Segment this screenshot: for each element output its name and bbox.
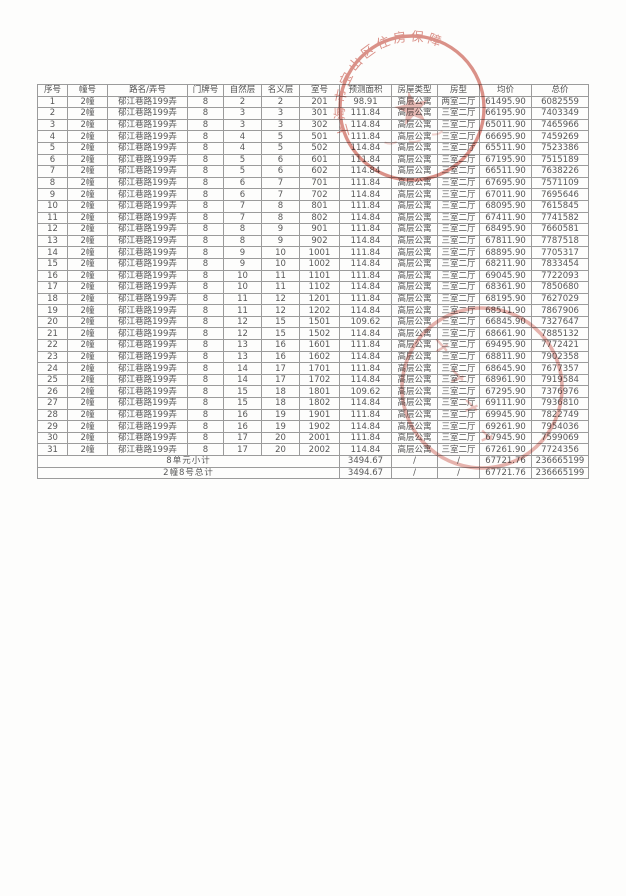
table-cell: 三室二厅	[438, 200, 480, 212]
table-cell: 16	[38, 270, 68, 282]
table-cell: 8	[188, 224, 224, 236]
col-header-natural-floor: 自然层	[224, 85, 262, 97]
table-cell: 21	[38, 328, 68, 340]
table-cell: 13	[38, 235, 68, 247]
table-cell: 1601	[300, 340, 340, 352]
table-cell: 8	[188, 340, 224, 352]
table-cell: 23	[38, 351, 68, 363]
table-cell: 高层公寓	[392, 200, 438, 212]
table-cell: 12	[262, 305, 300, 317]
table-cell: 111.84	[340, 363, 392, 375]
table-cell: 8	[188, 328, 224, 340]
table-cell: 11	[262, 270, 300, 282]
table-row: 112幢郁江巷路199弄878802114.84高层公寓三室二厅67411.90…	[38, 212, 589, 224]
table-cell: 6082559	[532, 96, 589, 108]
table-row: 12幢郁江巷路199弄82220198.91高层公寓两室二厅61495.9060…	[38, 96, 589, 108]
table-cell: 69261.90	[480, 421, 532, 433]
table-cell: 3	[38, 119, 68, 131]
table-cell: 10	[262, 247, 300, 259]
table-cell: 3	[224, 108, 262, 120]
table-cell: 111.84	[340, 409, 392, 421]
table-row: 202幢郁江巷路199弄812151501109.62高层公寓三室二厅66845…	[38, 316, 589, 328]
table-row: 162幢郁江巷路199弄810111101111.84高层公寓三室二厅69045…	[38, 270, 589, 282]
table-cell: 9	[38, 189, 68, 201]
table-cell: 10	[38, 200, 68, 212]
table-cell: 11	[38, 212, 68, 224]
table-cell: 2幢	[68, 282, 108, 294]
table-cell: 三室二厅	[438, 189, 480, 201]
table-cell: 68511.90	[480, 305, 532, 317]
table-cell: 8	[188, 119, 224, 131]
table-cell: 9	[262, 235, 300, 247]
table-cell: 三室二厅	[438, 351, 480, 363]
table-cell: 高层公寓	[392, 409, 438, 421]
table-row: 152幢郁江巷路199弄89101002114.84高层公寓三室二厅68211.…	[38, 258, 589, 270]
table-cell: 111.84	[340, 200, 392, 212]
table-cell: 7936810	[532, 398, 589, 410]
table-row: 212幢郁江巷路199弄812151502114.84高层公寓三室二厅68661…	[38, 328, 589, 340]
unit-subtotal-row: 8单元小计3494.67//67721.76236665199	[38, 456, 589, 468]
table-cell: 19	[38, 305, 68, 317]
table-cell: 三室二厅	[438, 409, 480, 421]
table-cell: 20	[262, 432, 300, 444]
table-cell: 12	[224, 316, 262, 328]
table-cell: 三室二厅	[438, 432, 480, 444]
summary-value-cell: 3494.67	[340, 456, 392, 468]
table-cell: 11	[262, 282, 300, 294]
table-cell: 30	[38, 432, 68, 444]
table-cell: 17	[262, 374, 300, 386]
table-cell: 801	[300, 200, 340, 212]
table-cell: 98.91	[340, 96, 392, 108]
table-cell: 5	[262, 131, 300, 143]
table-cell: 1901	[300, 409, 340, 421]
col-header-layout: 房型	[438, 85, 480, 97]
table-cell: 高层公寓	[392, 374, 438, 386]
summary-value-cell: /	[438, 456, 480, 468]
table-cell: 郁江巷路199弄	[108, 108, 188, 120]
table-cell: 114.84	[340, 421, 392, 433]
table-cell: 郁江巷路199弄	[108, 409, 188, 421]
table-cell: 7571109	[532, 177, 589, 189]
table-cell: 高层公寓	[392, 258, 438, 270]
table-row: 282幢郁江巷路199弄816191901111.84高层公寓三室二厅69945…	[38, 409, 589, 421]
table-cell: 2幢	[68, 351, 108, 363]
table-cell: 高层公寓	[392, 293, 438, 305]
table-cell: 19	[262, 409, 300, 421]
table-cell: 65011.90	[480, 119, 532, 131]
table-cell: 22	[38, 340, 68, 352]
table-cell: 69495.90	[480, 340, 532, 352]
table-cell: 2幢	[68, 374, 108, 386]
table-cell: 4	[224, 131, 262, 143]
scanned-document-page: 序号 幢号 路名/弄号 门牌号 自然层 名义层 室号 预测面积 房屋类型 房型 …	[0, 0, 626, 896]
table-cell: 郁江巷路199弄	[108, 247, 188, 259]
table-cell: 8	[262, 200, 300, 212]
table-cell: 三室二厅	[438, 108, 480, 120]
table-cell: 109.62	[340, 386, 392, 398]
header-row: 序号 幢号 路名/弄号 门牌号 自然层 名义层 室号 预测面积 房屋类型 房型 …	[38, 85, 589, 97]
table-cell: 高层公寓	[392, 421, 438, 433]
table-cell: 高层公寓	[392, 351, 438, 363]
table-cell: 郁江巷路199弄	[108, 119, 188, 131]
table-cell: 8	[38, 177, 68, 189]
table-cell: 10	[224, 282, 262, 294]
table-cell: 1501	[300, 316, 340, 328]
table-cell: 郁江巷路199弄	[108, 131, 188, 143]
table-cell: 7523386	[532, 142, 589, 154]
table-cell: 7	[38, 166, 68, 178]
table-cell: 13	[224, 340, 262, 352]
table-cell: 114.84	[340, 328, 392, 340]
table-cell: 三室二厅	[438, 421, 480, 433]
table-cell: 114.84	[340, 374, 392, 386]
table-cell: 三室二厅	[438, 270, 480, 282]
table-cell: 10	[224, 270, 262, 282]
table-cell: 三室二厅	[438, 328, 480, 340]
table-cell: 501	[300, 131, 340, 143]
table-cell: 111.84	[340, 131, 392, 143]
table-cell: 郁江巷路199弄	[108, 270, 188, 282]
table-cell: 17	[262, 363, 300, 375]
table-cell: 9	[262, 224, 300, 236]
table-cell: 8	[188, 177, 224, 189]
table-row: 312幢郁江巷路199弄817202002114.84高层公寓三室二厅67261…	[38, 444, 589, 456]
table-cell: 7919584	[532, 374, 589, 386]
table-cell: 66695.90	[480, 131, 532, 143]
table-cell: 111.84	[340, 293, 392, 305]
table-cell: 7677357	[532, 363, 589, 375]
table-cell: 114.84	[340, 235, 392, 247]
table-cell: 67195.90	[480, 154, 532, 166]
table-cell: 7327647	[532, 316, 589, 328]
table-row: 102幢郁江巷路199弄878801111.84高层公寓三室二厅68095.90…	[38, 200, 589, 212]
table-row: 222幢郁江巷路199弄813161601111.84高层公寓三室二厅69495…	[38, 340, 589, 352]
table-row: 42幢郁江巷路199弄845501111.84高层公寓三室二厅66695.907…	[38, 131, 589, 143]
table-cell: 2幢	[68, 258, 108, 270]
table-cell: 66845.90	[480, 316, 532, 328]
table-cell: 114.84	[340, 444, 392, 456]
table-cell: 2	[224, 96, 262, 108]
table-cell: 郁江巷路199弄	[108, 293, 188, 305]
table-cell: 2幢	[68, 189, 108, 201]
table-cell: 高层公寓	[392, 282, 438, 294]
col-header-room-no: 室号	[300, 85, 340, 97]
table-cell: 2幢	[68, 131, 108, 143]
table-cell: 郁江巷路199弄	[108, 96, 188, 108]
table-cell: 1502	[300, 328, 340, 340]
table-cell: 114.84	[340, 212, 392, 224]
summary-label-cell: 2幢8号总计	[38, 467, 340, 479]
table-cell: 28	[38, 409, 68, 421]
table-cell: 68361.90	[480, 282, 532, 294]
table-cell: 25	[38, 374, 68, 386]
table-cell: 31	[38, 444, 68, 456]
table-cell: 29	[38, 421, 68, 433]
table-cell: 2幢	[68, 108, 108, 120]
table-row: 192幢郁江巷路199弄811121202114.84高层公寓三室二厅68511…	[38, 305, 589, 317]
table-cell: 郁江巷路199弄	[108, 282, 188, 294]
table-cell: 7724356	[532, 444, 589, 456]
table-cell: 1001	[300, 247, 340, 259]
table-cell: 高层公寓	[392, 316, 438, 328]
table-cell: 2幢	[68, 270, 108, 282]
table-cell: 7660581	[532, 224, 589, 236]
table-cell: 2幢	[68, 409, 108, 421]
table-cell: 8	[188, 293, 224, 305]
table-cell: 高层公寓	[392, 386, 438, 398]
table-cell: 8	[188, 247, 224, 259]
table-cell: 郁江巷路199弄	[108, 351, 188, 363]
table-cell: 67261.90	[480, 444, 532, 456]
table-cell: 14	[224, 363, 262, 375]
table-cell: 1101	[300, 270, 340, 282]
table-cell: 15	[224, 398, 262, 410]
table-cell: 114.84	[340, 166, 392, 178]
table-cell: 111.84	[340, 432, 392, 444]
table-cell: 114.84	[340, 351, 392, 363]
col-header-forecast-area: 预测面积	[340, 85, 392, 97]
table-cell: 2幢	[68, 340, 108, 352]
table-cell: 8	[262, 212, 300, 224]
table-cell: 7376976	[532, 386, 589, 398]
table-cell: 高层公寓	[392, 247, 438, 259]
table-cell: 1201	[300, 293, 340, 305]
table-cell: 68095.90	[480, 200, 532, 212]
table-cell: 67945.90	[480, 432, 532, 444]
table-cell: 902	[300, 235, 340, 247]
table-cell: 郁江巷路199弄	[108, 154, 188, 166]
table-cell: 2幢	[68, 421, 108, 433]
table-cell: 502	[300, 142, 340, 154]
table-cell: 14	[38, 247, 68, 259]
table-row: 72幢郁江巷路199弄856602114.84高层公寓三室二厅66511.907…	[38, 166, 589, 178]
table-cell: 15	[224, 386, 262, 398]
table-row: 142幢郁江巷路199弄89101001111.84高层公寓三室二厅68895.…	[38, 247, 589, 259]
table-cell: 7403349	[532, 108, 589, 120]
table-cell: 郁江巷路199弄	[108, 444, 188, 456]
table-cell: 201	[300, 96, 340, 108]
table-cell: 702	[300, 189, 340, 201]
table-row: 62幢郁江巷路199弄856601111.84高层公寓三室二厅67195.907…	[38, 154, 589, 166]
table-cell: 5	[224, 166, 262, 178]
table-cell: 郁江巷路199弄	[108, 142, 188, 154]
table-cell: 4	[38, 131, 68, 143]
table-cell: 三室二厅	[438, 340, 480, 352]
table-row: 22幢郁江巷路199弄833301111.84高层公寓三室二厅66195.907…	[38, 108, 589, 120]
table-cell: 2幢	[68, 142, 108, 154]
col-header-unit-price: 均价	[480, 85, 532, 97]
table-cell: 三室二厅	[438, 386, 480, 398]
table-row: 52幢郁江巷路199弄845502114.84高层公寓三室二厅65511.907…	[38, 142, 589, 154]
table-cell: 2幢	[68, 293, 108, 305]
table-cell: 1802	[300, 398, 340, 410]
table-row: 302幢郁江巷路199弄817202001111.84高层公寓三室二厅67945…	[38, 432, 589, 444]
table-cell: 8	[188, 108, 224, 120]
col-header-door-no: 门牌号	[188, 85, 224, 97]
table-cell: 1102	[300, 282, 340, 294]
table-cell: 7867906	[532, 305, 589, 317]
table-cell: 111.84	[340, 177, 392, 189]
table-cell: 2幢	[68, 316, 108, 328]
table-cell: 2幢	[68, 96, 108, 108]
table-cell: 8	[224, 235, 262, 247]
table-cell: 114.84	[340, 119, 392, 131]
table-cell: 109.62	[340, 316, 392, 328]
table-row: 122幢郁江巷路199弄889901111.84高层公寓三室二厅68495.90…	[38, 224, 589, 236]
table-cell: 郁江巷路199弄	[108, 316, 188, 328]
table-cell: 26	[38, 386, 68, 398]
table-cell: 8	[188, 258, 224, 270]
table-header: 序号 幢号 路名/弄号 门牌号 自然层 名义层 室号 预测面积 房屋类型 房型 …	[38, 85, 589, 97]
table-cell: 8	[188, 189, 224, 201]
table-cell: 15	[38, 258, 68, 270]
table-cell: 8	[188, 351, 224, 363]
table-cell: 2幢	[68, 444, 108, 456]
table-cell: 郁江巷路199弄	[108, 305, 188, 317]
table-cell: 郁江巷路199弄	[108, 224, 188, 236]
table-cell: 8	[188, 363, 224, 375]
table-cell: 6	[224, 177, 262, 189]
table-cell: 三室二厅	[438, 154, 480, 166]
table-cell: 8	[188, 142, 224, 154]
table-cell: 高层公寓	[392, 189, 438, 201]
table-cell: 高层公寓	[392, 444, 438, 456]
table-cell: 6	[224, 189, 262, 201]
table-cell: 67811.90	[480, 235, 532, 247]
table-cell: 114.84	[340, 282, 392, 294]
table-cell: 5	[224, 154, 262, 166]
table-cell: 高层公寓	[392, 432, 438, 444]
table-cell: 三室二厅	[438, 177, 480, 189]
table-cell: 郁江巷路199弄	[108, 386, 188, 398]
table-cell: 68211.90	[480, 258, 532, 270]
table-cell: 16	[262, 340, 300, 352]
table-cell: 7850680	[532, 282, 589, 294]
table-cell: 901	[300, 224, 340, 236]
table-cell: 68195.90	[480, 293, 532, 305]
table-cell: 三室二厅	[438, 119, 480, 131]
table-cell: 601	[300, 154, 340, 166]
table-cell: 7954036	[532, 421, 589, 433]
table-body: 12幢郁江巷路199弄82220198.91高层公寓两室二厅61495.9060…	[38, 96, 589, 479]
table-cell: 7459269	[532, 131, 589, 143]
table-cell: 2幢	[68, 398, 108, 410]
table-row: 32幢郁江巷路199弄833302114.84高层公寓三室二厅65011.907…	[38, 119, 589, 131]
table-cell: 郁江巷路199弄	[108, 235, 188, 247]
table-cell: 高层公寓	[392, 212, 438, 224]
summary-value-cell: 67721.76	[480, 456, 532, 468]
table-cell: 2幢	[68, 328, 108, 340]
table-cell: 8	[188, 409, 224, 421]
table-cell: 7705317	[532, 247, 589, 259]
table-cell: 7	[262, 177, 300, 189]
table-cell: 17	[224, 432, 262, 444]
table-cell: 14	[224, 374, 262, 386]
table-row: 82幢郁江巷路199弄867701111.84高层公寓三室二厅67695.907…	[38, 177, 589, 189]
table-cell: 8	[188, 316, 224, 328]
table-cell: 高层公寓	[392, 305, 438, 317]
table-cell: 8	[188, 166, 224, 178]
table-cell: 602	[300, 166, 340, 178]
table-cell: 7	[224, 212, 262, 224]
table-cell: 7787518	[532, 235, 589, 247]
table-cell: 三室二厅	[438, 444, 480, 456]
table-cell: 2幢	[68, 177, 108, 189]
table-cell: 7599069	[532, 432, 589, 444]
table-cell: 7638226	[532, 166, 589, 178]
table-cell: 两室二厅	[438, 96, 480, 108]
table-cell: 2幢	[68, 305, 108, 317]
summary-value-cell: /	[392, 456, 438, 468]
table-cell: 8	[188, 212, 224, 224]
table-cell: 68895.90	[480, 247, 532, 259]
building-total-row: 2幢8号总计3494.67//67721.76236665199	[38, 467, 589, 479]
col-header-index: 序号	[38, 85, 68, 97]
summary-value-cell: 236665199	[532, 456, 589, 468]
table-cell: 114.84	[340, 142, 392, 154]
table-cell: 高层公寓	[392, 154, 438, 166]
table-cell: 三室二厅	[438, 131, 480, 143]
table-cell: 65511.90	[480, 142, 532, 154]
table-cell: 三室二厅	[438, 282, 480, 294]
table-cell: 5	[38, 142, 68, 154]
table-cell: 高层公寓	[392, 108, 438, 120]
table-cell: 66195.90	[480, 108, 532, 120]
table-cell: 7465966	[532, 119, 589, 131]
table-cell: 7627029	[532, 293, 589, 305]
table-cell: 68661.90	[480, 328, 532, 340]
table-cell: 2幢	[68, 247, 108, 259]
table-cell: 三室二厅	[438, 247, 480, 259]
table-cell: 67011.90	[480, 189, 532, 201]
table-cell: 2	[262, 96, 300, 108]
table-row: 92幢郁江巷路199弄867702114.84高层公寓三室二厅67011.907…	[38, 189, 589, 201]
table-cell: 17	[38, 282, 68, 294]
table-row: 292幢郁江巷路199弄816191902114.84高层公寓三室二厅69261…	[38, 421, 589, 433]
table-cell: 高层公寓	[392, 235, 438, 247]
table-cell: 郁江巷路199弄	[108, 328, 188, 340]
table-row: 232幢郁江巷路199弄813161602114.84高层公寓三室二厅68811…	[38, 351, 589, 363]
table-cell: 11	[224, 293, 262, 305]
table-cell: 8	[188, 374, 224, 386]
table-cell: 8	[188, 131, 224, 143]
table-cell: 三室二厅	[438, 258, 480, 270]
table-cell: 27	[38, 398, 68, 410]
summary-value-cell: 3494.67	[340, 467, 392, 479]
table-row: 262幢郁江巷路199弄815181801109.62高层公寓三室二厅67295…	[38, 386, 589, 398]
table-cell: 三室二厅	[438, 224, 480, 236]
table-cell: 2幢	[68, 432, 108, 444]
table-cell: 301	[300, 108, 340, 120]
table-cell: 8	[188, 270, 224, 282]
table-cell: 郁江巷路199弄	[108, 166, 188, 178]
table-row: 272幢郁江巷路199弄815181802114.84高层公寓三室二厅69111…	[38, 398, 589, 410]
table-cell: 8	[188, 386, 224, 398]
table-row: 132幢郁江巷路199弄889902114.84高层公寓三室二厅67811.90…	[38, 235, 589, 247]
table-cell: 7902358	[532, 351, 589, 363]
table-cell: 2002	[300, 444, 340, 456]
table-cell: 2幢	[68, 212, 108, 224]
col-header-total-price: 总价	[532, 85, 589, 97]
table-cell: 111.84	[340, 224, 392, 236]
col-header-road: 路名/弄号	[108, 85, 188, 97]
table-cell: 高层公寓	[392, 270, 438, 282]
table-cell: 18	[262, 386, 300, 398]
table-cell: 8	[188, 154, 224, 166]
table-cell: 三室二厅	[438, 166, 480, 178]
table-row: 182幢郁江巷路199弄811121201111.84高层公寓三室二厅68195…	[38, 293, 589, 305]
